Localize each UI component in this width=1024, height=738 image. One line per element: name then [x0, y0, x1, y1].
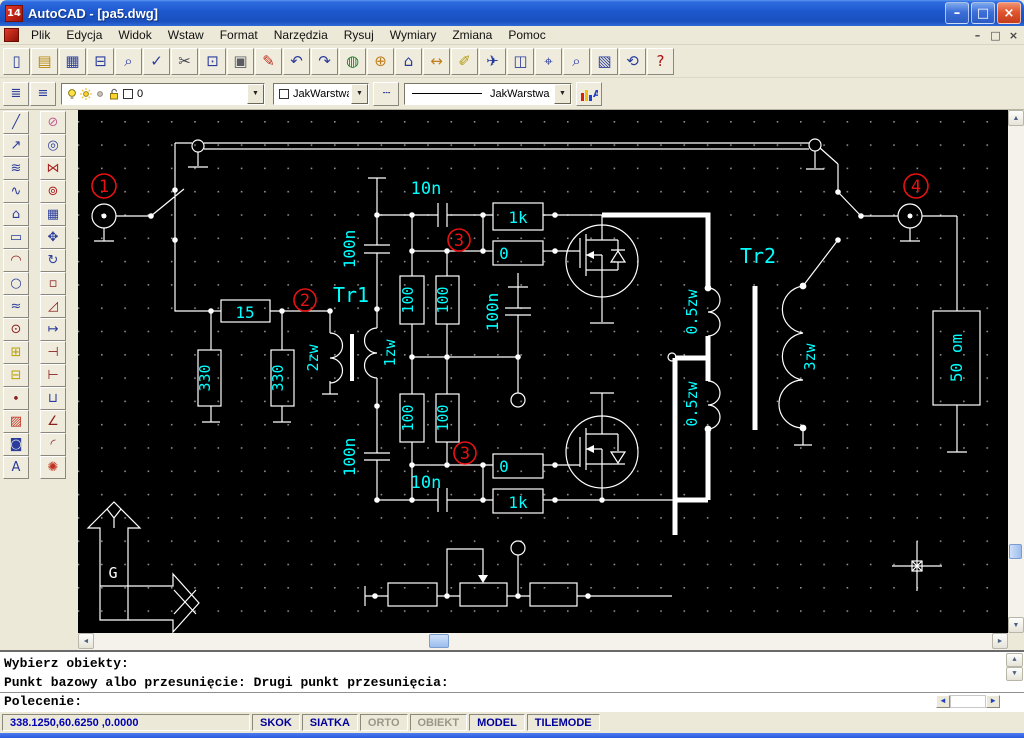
draw-toolbar: ╱↗≋∿⌂▭◠○≈⊙⊞⊟∙▨◙A	[3, 111, 29, 650]
label-w05zw-bottom: 0.5zw	[683, 380, 701, 426]
scroll-up-button[interactable]: ▲	[1008, 110, 1024, 126]
zoom-window-button[interactable]: ▧	[591, 48, 618, 75]
marker-3b: 3	[460, 444, 470, 464]
label-r100-1: 100	[399, 286, 417, 313]
menu-item-7[interactable]: Wymiary	[382, 27, 445, 43]
marker-3a: 3	[454, 231, 464, 251]
label-c10n-top: 10n	[411, 179, 442, 199]
layer-frozen-sun-icon	[94, 88, 106, 100]
scale-tool[interactable]: ▫	[40, 272, 66, 295]
grid-dots	[78, 110, 1008, 633]
redline-button[interactable]: ✐	[451, 48, 478, 75]
vertical-scroll-track[interactable]	[1008, 126, 1024, 617]
layer-combo-arrow[interactable]: ▼	[247, 84, 264, 104]
command-scroll-left-button[interactable]: ◄	[936, 695, 950, 708]
label-tr2: Tr2	[740, 244, 776, 268]
extend-tool[interactable]: ⊢	[40, 364, 66, 387]
label-r0-top: 0	[499, 244, 509, 263]
label-r100-3: 100	[399, 404, 417, 431]
status-toggle-1[interactable]: SIATKA	[302, 714, 358, 731]
linetype-combo[interactable]: JakWarstwa ▼	[404, 83, 572, 105]
command-scrollbar[interactable]: ▲ ▼	[1006, 653, 1023, 681]
chamfer-tool[interactable]: ∠	[40, 410, 66, 433]
menu-item-4[interactable]: Format	[212, 27, 266, 43]
construction-line-tool[interactable]: ↗	[3, 134, 29, 157]
properties-bars-icon: A	[580, 85, 598, 103]
modify-toolbar: ⊘◎⋈⊚▦✥↻▫◿↦⊣⊢⊔∠◜✺	[40, 111, 66, 650]
command-scroll-track[interactable]	[950, 695, 986, 708]
horizontal-scroll-thumb[interactable]	[429, 634, 449, 648]
marker-4: 4	[911, 177, 921, 197]
autocad-logo-icon: 14	[5, 5, 23, 22]
label-c10n-bottom: 10n	[411, 473, 442, 493]
point-tool[interactable]: ∙	[3, 387, 29, 410]
label-w1zw: 1zw	[381, 338, 399, 366]
label-w3zw: 3zw	[801, 342, 819, 370]
command-line-area[interactable]: Wybierz obiekty:Punkt bazowy albo przesu…	[0, 650, 1024, 712]
make-block-tool[interactable]: ⊟	[3, 364, 29, 387]
erase-tool[interactable]: ⊘	[40, 111, 66, 134]
command-prompt-line[interactable]: Polecenie: ◄ ►	[0, 693, 1024, 710]
rectangle-tool[interactable]: ▭	[3, 226, 29, 249]
stretch-tool[interactable]: ◿	[40, 295, 66, 318]
object-snap-button[interactable]: ⊕	[367, 48, 394, 75]
spline-tool[interactable]: ≈	[3, 295, 29, 318]
vertical-scrollbar[interactable]: ▲ ▼	[1008, 110, 1024, 650]
menu-item-5[interactable]: Narzędzia	[266, 27, 336, 43]
circle-tool[interactable]: ○	[3, 272, 29, 295]
linetype-combo-arrow[interactable]: ▼	[554, 84, 571, 104]
current-layer-value: 0	[137, 88, 245, 100]
coordinates-readout: 338.1250,60.6250 ,0.0000	[2, 714, 250, 731]
current-linetype-value: JakWarstwa	[490, 88, 552, 100]
label-c100n-mid: 100n	[483, 293, 502, 332]
region-tool[interactable]: ◙	[3, 433, 29, 456]
label-r100-4: 100	[434, 404, 452, 431]
status-toggle-0[interactable]: SKOK	[252, 714, 300, 731]
taskbar-edge	[0, 733, 1024, 738]
array-tool[interactable]: ▦	[40, 203, 66, 226]
status-toggle-3[interactable]: OBIEKT	[410, 714, 468, 731]
horizontal-scroll-track[interactable]	[94, 633, 992, 650]
help-button[interactable]: ?	[647, 48, 674, 75]
print-preview-button[interactable]: ⌕	[115, 48, 142, 75]
save-button[interactable]: ▦	[59, 48, 86, 75]
rotate-tool[interactable]: ↻	[40, 249, 66, 272]
label-r50om: 50 om	[947, 334, 966, 382]
cut-button[interactable]: ✂	[171, 48, 198, 75]
move-tool[interactable]: ✥	[40, 226, 66, 249]
layer-thaw-sun-icon	[80, 88, 92, 100]
linetype-sample-line	[412, 93, 482, 94]
side-toolbox: ╱↗≋∿⌂▭◠○≈⊙⊞⊟∙▨◙A ⊘◎⋈⊚▦✥↻▫◿↦⊣⊢⊔∠◜✺	[0, 110, 78, 650]
menu-item-2[interactable]: Widok	[110, 27, 159, 43]
explode-tool[interactable]: ✺	[40, 456, 66, 479]
svg-text:A: A	[593, 89, 598, 100]
drawing-file-icon[interactable]	[4, 28, 19, 42]
polyline-tool[interactable]: ∿	[3, 180, 29, 203]
window-title: AutoCAD - [pa5.dwg]	[28, 6, 943, 21]
scroll-down-button[interactable]: ▼	[1008, 617, 1024, 633]
menu-item-8[interactable]: Zmiana	[444, 27, 500, 43]
trim-tool[interactable]: ⊣	[40, 341, 66, 364]
horizontal-scrollbar[interactable]: ◄ ►	[78, 633, 1008, 650]
label-c100n-topleft: 100n	[340, 230, 359, 269]
label-r330-2: 330	[269, 364, 287, 391]
scroll-right-button[interactable]: ►	[992, 633, 1008, 649]
minimize-button[interactable]: –	[945, 2, 969, 24]
new-file-button[interactable]: ▯	[3, 48, 30, 75]
current-color-value: JakWarstwa	[293, 88, 349, 100]
color-combo-arrow[interactable]: ▼	[351, 84, 368, 104]
status-toggle-2[interactable]: ORTO	[360, 714, 408, 731]
command-mini-scrollbar[interactable]: ◄ ►	[936, 695, 1000, 708]
make-object-layer-current-button[interactable]: ≣	[3, 82, 29, 106]
text-tool[interactable]: A	[3, 456, 29, 479]
mdi-close-button[interactable]: ×	[1005, 28, 1022, 43]
fillet-tool[interactable]: ◜	[40, 433, 66, 456]
command-prompt: Polecenie:	[4, 694, 82, 709]
spell-check-button[interactable]: ✓	[143, 48, 170, 75]
label-w05zw-top: 0.5zw	[683, 288, 701, 334]
command-scroll-down-button[interactable]: ▼	[1006, 667, 1023, 681]
ellipse-tool[interactable]: ⊙	[3, 318, 29, 341]
menu-items: PlikEdycjaWidokWstawFormatNarzędziaRysuj…	[23, 27, 554, 43]
label-r330-1: 330	[196, 364, 214, 391]
arc-tool[interactable]: ◠	[3, 249, 29, 272]
open-folder-button[interactable]: ▤	[31, 48, 58, 75]
command-history: Wybierz obiekty:Punkt bazowy albo przesu…	[0, 652, 1024, 693]
label-r1k-bottom: 1k	[508, 493, 528, 512]
undo-button[interactable]: ↶	[283, 48, 310, 75]
label-c100n-bottomleft: 100n	[340, 438, 359, 477]
zoom-previous-button[interactable]: ⟲	[619, 48, 646, 75]
linetype-button[interactable]: ┄	[373, 82, 399, 106]
insert-block-tool[interactable]: ⊞	[3, 341, 29, 364]
menu-item-6[interactable]: Rysuj	[336, 27, 382, 43]
command-scroll-right-button[interactable]: ►	[986, 695, 1000, 708]
label-tr1: Tr1	[333, 283, 369, 307]
status-bar: 338.1250,60.6250 ,0.0000 SKOKSIATKAORTOO…	[0, 712, 1024, 733]
label-r1k-top: 1k	[508, 208, 528, 227]
restore-button[interactable]: □	[971, 2, 995, 24]
command-history-line1: Wybierz obiekty:	[4, 656, 129, 671]
drawing-canvas[interactable]: 1 2 3 3 4 Tr1 Tr2 15 10n 10n 1k 1k 0 0	[78, 110, 1008, 633]
zoom-realtime-button[interactable]: ⌕	[563, 48, 590, 75]
match-properties-button[interactable]: ✎	[255, 48, 282, 75]
layer-unlock-icon	[108, 88, 120, 100]
line-tool[interactable]: ╱	[3, 111, 29, 134]
redo-button[interactable]: ↷	[311, 48, 338, 75]
command-history-line2: Punkt bazowy albo przesunięcie: Drugi pu…	[4, 675, 449, 690]
pan-realtime-button[interactable]: ⌖	[535, 48, 562, 75]
marker-2: 2	[300, 291, 310, 311]
menu-bar: PlikEdycjaWidokWstawFormatNarzędziaRysuj…	[0, 26, 1024, 45]
ucs-button[interactable]: ⌂	[395, 48, 422, 75]
object-properties-button[interactable]: A	[576, 82, 602, 106]
menu-item-9[interactable]: Pomoc	[500, 27, 553, 43]
copy-object-tool[interactable]: ◎	[40, 134, 66, 157]
title-bar: 14 AutoCAD - [pa5.dwg] – □ ×	[0, 0, 1024, 26]
layer-on-bulb-icon	[66, 88, 78, 100]
color-combo[interactable]: JakWarstwa ▼	[273, 83, 369, 105]
copy-button[interactable]: ⊡	[199, 48, 226, 75]
menu-item-0[interactable]: Plik	[23, 27, 58, 43]
vertical-scroll-thumb[interactable]	[1009, 544, 1022, 559]
mirror-tool[interactable]: ⋈	[40, 157, 66, 180]
layer-combo[interactable]: 0 ▼	[61, 83, 265, 105]
status-toggle-4[interactable]: MODEL	[469, 714, 525, 731]
hatch-tool[interactable]: ▨	[3, 410, 29, 433]
paste-button[interactable]: ▣	[227, 48, 254, 75]
label-r100-2: 100	[434, 286, 452, 313]
multiline-tool[interactable]: ≋	[3, 157, 29, 180]
launch-browser-button[interactable]: ◍	[339, 48, 366, 75]
autocad-window: 14 AutoCAD - [pa5.dwg] – □ × PlikEdycjaW…	[0, 0, 1024, 738]
print-button[interactable]: ⊟	[87, 48, 114, 75]
layers-button[interactable]: ≡	[30, 82, 56, 106]
menu-item-1[interactable]: Edycja	[58, 27, 110, 43]
lengthen-tool[interactable]: ↦	[40, 318, 66, 341]
status-toggle-5[interactable]: TILEMODE	[527, 714, 600, 731]
object-properties-toolbar: ≣ ≡ 0 ▼ JakWarstwa ▼ ┄ JakWarstwa ▼ A	[0, 78, 1024, 110]
mdi-restore-button[interactable]: □	[987, 28, 1004, 43]
scroll-left-button[interactable]: ◄	[78, 633, 94, 649]
menu-item-3[interactable]: Wstaw	[160, 27, 212, 43]
label-w2zw: 2zw	[304, 343, 322, 371]
layer-color-swatch	[123, 89, 133, 99]
marker-1: 1	[99, 177, 109, 197]
mdi-minimize-button[interactable]: –	[969, 28, 986, 43]
polygon-tool[interactable]: ⌂	[3, 203, 29, 226]
current-color-swatch	[279, 89, 289, 99]
standard-toolbar: ▯▤▦⊟⌕✓✂⊡▣✎↶↷◍⊕⌂↔✐✈◫⌖⌕▧⟲?	[0, 45, 1024, 78]
label-r15: 15	[235, 303, 254, 322]
aerial-view-button[interactable]: ◫	[507, 48, 534, 75]
distance-button[interactable]: ↔	[423, 48, 450, 75]
named-views-button[interactable]: ✈	[479, 48, 506, 75]
ucs-world-letter: G	[108, 564, 117, 582]
command-scroll-up-button[interactable]: ▲	[1006, 653, 1023, 667]
status-toggles: SKOKSIATKAORTOOBIEKTMODELTILEMODE	[252, 714, 602, 731]
offset-tool[interactable]: ⊚	[40, 180, 66, 203]
label-r0-bottom: 0	[499, 457, 509, 476]
break-tool[interactable]: ⊔	[40, 387, 66, 410]
close-button[interactable]: ×	[997, 2, 1021, 24]
